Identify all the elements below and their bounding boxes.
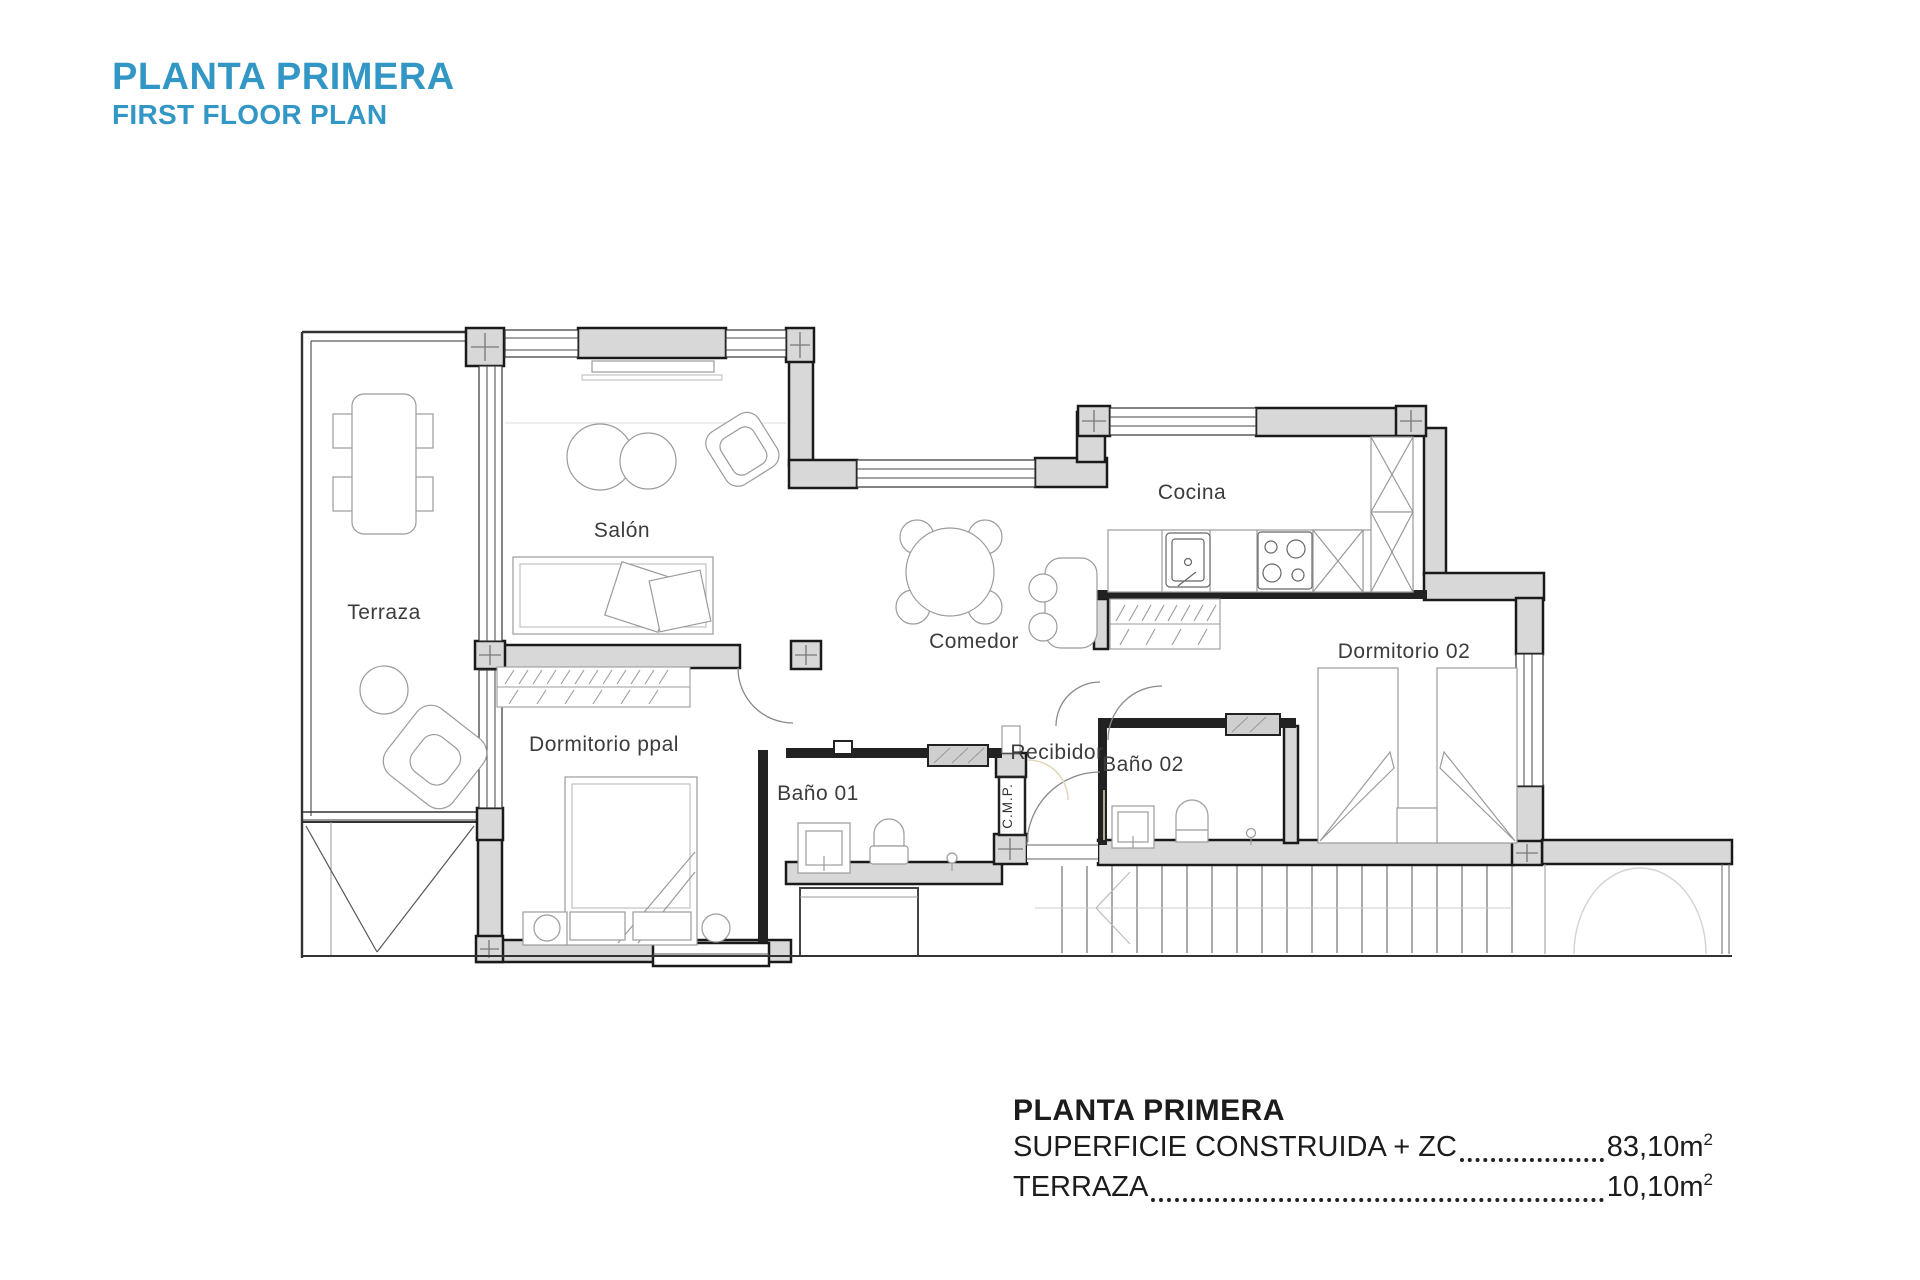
nightstand [702, 914, 730, 942]
toilet [874, 819, 904, 846]
room-label-bano01: Baño 01 [777, 782, 859, 805]
side-annex [1545, 864, 1729, 954]
room-label-recibidor: Recibidor [1010, 741, 1103, 764]
summary-value-exponent: 2 [1704, 1170, 1713, 1189]
hob [1258, 532, 1312, 589]
master-wardrobe [497, 667, 690, 707]
master-bed [523, 777, 730, 945]
floor-plan-drawing: Terraza Salón Comedor Cocina Dormitorio … [0, 0, 1920, 1280]
dining-set [896, 520, 1002, 624]
terrace-dining-set [333, 394, 433, 534]
summary-label: SUPERFICIE CONSTRUIDA + ZC [1013, 1129, 1457, 1165]
room-label-salon: Salón [594, 519, 650, 542]
summary-value-exponent: 2 [1704, 1130, 1713, 1149]
room-label-comedor: Comedor [929, 630, 1019, 653]
terrace-lounge [360, 666, 494, 816]
summary-row-terrace: TERRAZA 10,10m2 [1013, 1169, 1713, 1209]
nightstand [1397, 808, 1437, 843]
dorm02-door-arc [1108, 686, 1162, 740]
lower-roof [800, 888, 918, 956]
master-door-arc [738, 668, 793, 723]
room-label-dormitorio02: Dormitorio 02 [1338, 640, 1471, 663]
summary-heading: PLANTA PRIMERA [1013, 1093, 1713, 1129]
dining-table [906, 528, 994, 616]
sink [1166, 533, 1210, 587]
bath02-door-arc [1056, 682, 1100, 726]
bar-stool [1029, 574, 1057, 602]
bar-stool [1029, 613, 1057, 641]
room-label-cocina: Cocina [1158, 481, 1226, 504]
stairs [1035, 866, 1512, 953]
dot-leader [1460, 1158, 1604, 1162]
summary-value: 10,10m [1607, 1171, 1704, 1203]
surface-summary: PLANTA PRIMERA SUPERFICIE CONSTRUIDA + Z… [1013, 1093, 1713, 1209]
room-label-bano02: Baño 02 [1102, 753, 1184, 776]
summary-value: 83,10m [1607, 1131, 1704, 1163]
toilet [1176, 800, 1208, 842]
dorm02-closet [1110, 599, 1220, 649]
tv-unit [592, 361, 714, 372]
room-label-terraza: Terraza [347, 601, 421, 624]
dorm02-beds [1318, 668, 1517, 843]
nightstand [534, 915, 560, 941]
summary-label: TERRAZA [1013, 1169, 1148, 1205]
room-label-cmp: C.M.P. [1000, 783, 1015, 829]
living-room-furniture [505, 361, 786, 634]
chimney-notch [834, 741, 852, 754]
kitchen-cabinets [1313, 437, 1413, 592]
floor-plan-page: PLANTA PRIMERA FIRST FLOOR PLAN [0, 0, 1920, 1280]
armchair [701, 407, 785, 491]
summary-row-built-surface: SUPERFICIE CONSTRUIDA + ZC 83,10m2 [1013, 1129, 1713, 1169]
room-label-dormitorio-ppal: Dormitorio ppal [529, 733, 679, 756]
dot-leader [1151, 1198, 1603, 1202]
